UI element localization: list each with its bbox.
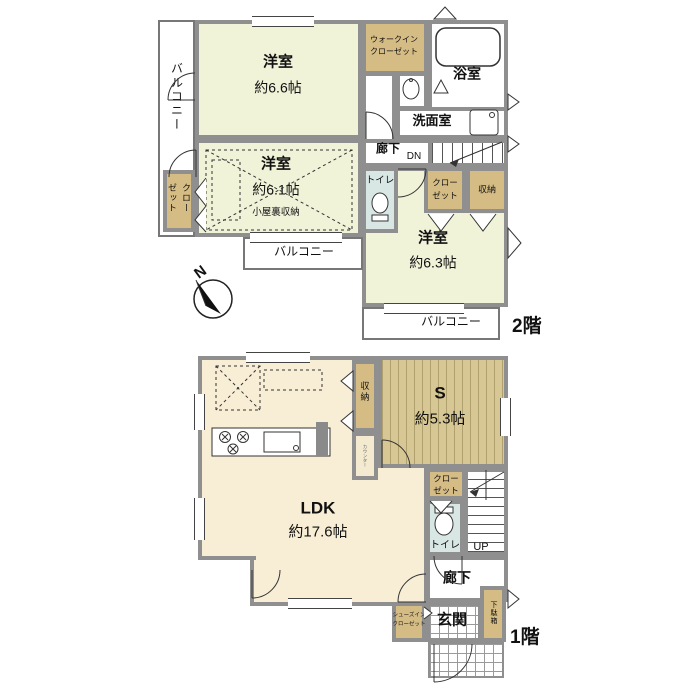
window-icon	[246, 352, 310, 363]
window-icon	[194, 498, 205, 540]
washroom-label: 洗面室	[412, 113, 451, 129]
window-icon	[194, 394, 205, 430]
wic-label-line2: クローゼット	[370, 47, 418, 57]
entrance-porch	[428, 642, 504, 678]
sink-nook-2f	[396, 72, 428, 110]
sic-label-line2: クローゼット	[392, 622, 425, 629]
balcony-mid-label: バルコニー	[274, 245, 334, 260]
window-icon	[252, 16, 314, 27]
entrance-label: 玄関	[437, 612, 467, 631]
ldk-seam-patch	[256, 552, 424, 566]
stairs-up-label: UP	[473, 541, 488, 555]
compass-north-label: N	[191, 262, 211, 284]
balcony-left-label: バルコニー	[169, 62, 186, 132]
room-61-size: 約6.1帖	[252, 181, 299, 199]
window-icon	[288, 598, 352, 609]
closet-2f-right-line2: ゼット	[432, 191, 458, 202]
room-66-size: 約6.6帖	[254, 79, 301, 97]
closet-1f-line1: クロー	[433, 474, 459, 485]
room-61-name: 洋室	[261, 156, 291, 175]
bathroom-label: 浴室	[453, 65, 481, 83]
balcony-right-label: バルコニー	[421, 315, 481, 330]
closet-1f-line2: ゼット	[433, 486, 459, 497]
room-63-size: 約6.3帖	[409, 254, 456, 272]
s-room-size: 約5.3帖	[415, 411, 466, 430]
floor-2-tag: 2階	[512, 311, 542, 338]
room-63-name: 洋室	[418, 230, 448, 249]
sic-label-line1: シューズイン	[393, 613, 426, 620]
s-room-name: S	[434, 382, 445, 403]
window-icon	[500, 398, 511, 436]
stairs-dn-label: DN	[407, 151, 421, 164]
ldk-size: 約17.6帖	[288, 524, 347, 543]
closet-2f-left-label: クローゼット	[165, 183, 193, 219]
hallway-1f-label: 廊下	[443, 569, 471, 587]
window-icon	[250, 232, 342, 243]
wic-label-line1: ウォークイン	[370, 35, 418, 45]
storage-2f-label: 収納	[478, 184, 496, 195]
storage-1f-label: 収納	[359, 381, 372, 403]
toilet-1f-label: トイレ	[430, 540, 460, 553]
counter-label: カウンター	[362, 445, 368, 468]
floor-plan: バルコニー 洋室 約6.6帖 ウォークイン クローゼット 浴室 洗面室 廊下 D…	[0, 0, 700, 700]
room-66-name: 洋室	[263, 54, 293, 73]
window-icon	[384, 303, 464, 314]
toilet-2f-label: トイレ	[366, 175, 395, 187]
shoe-box-label: 下駄箱	[488, 601, 498, 625]
stairs-down-2f	[428, 139, 508, 167]
compass-icon	[194, 280, 232, 318]
attic-storage-label: 小屋裏収納	[252, 207, 300, 219]
ldk-name: LDK	[301, 497, 336, 518]
floor-1-tag: 1階	[510, 622, 540, 649]
closet-2f-right-line1: クロー	[432, 178, 458, 189]
hallway-2f-label: 廊下	[376, 142, 400, 157]
